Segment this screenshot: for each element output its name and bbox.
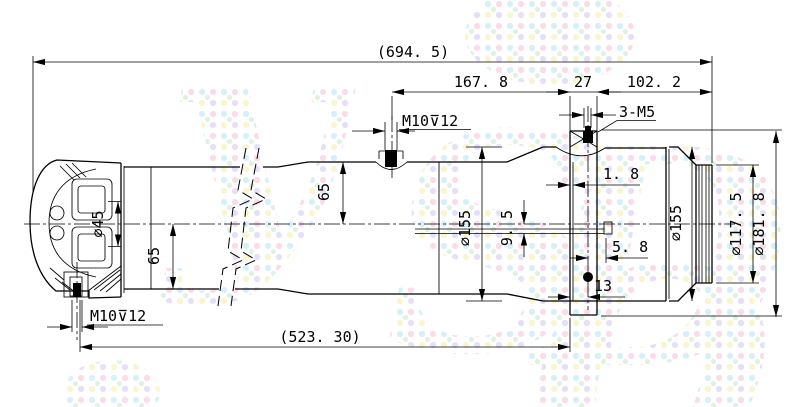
- dim-text-dia-181-8: ∅181. 8: [750, 192, 768, 255]
- dim-text-m10-bottom: M10⊽12: [90, 307, 146, 325]
- dim-text-1-8: 1. 8: [603, 165, 639, 183]
- dim-text-dia-155-mid: ∅155: [456, 210, 474, 246]
- m10-top-hole: [385, 150, 397, 167]
- dim-text-27: 27: [574, 73, 592, 91]
- dim-text-dia-45: ∅45: [89, 210, 107, 237]
- dim-text-65-front: 65: [145, 247, 163, 265]
- dim-text-13: 13: [594, 277, 612, 295]
- dim-text-5-8: 5. 8: [612, 238, 648, 256]
- watermark-blob: [64, 360, 160, 407]
- dim-text-523-30: (523. 30): [279, 328, 360, 346]
- dim-text-65-mid: 65: [315, 183, 333, 201]
- pin-dot: [583, 272, 593, 282]
- dim-text-3m5: 3-M5: [619, 103, 655, 121]
- dim-text-dia-155-rear: ∅155: [667, 205, 685, 241]
- engineering-drawing: y S D Q: [0, 0, 800, 407]
- dim-text-9-5: 9. 5: [498, 210, 516, 246]
- thread-callout-m10-bottom: M10⊽12: [47, 307, 163, 327]
- watermark: y S D Q: [64, 0, 793, 407]
- dim-text-102-2: 102. 2: [627, 73, 681, 91]
- spindle-drawing-svg: y S D Q: [0, 0, 800, 407]
- nose-section: [30, 160, 124, 298]
- dim-text-overall: (694. 5): [377, 43, 449, 61]
- m10-bottom-hole: [73, 283, 81, 297]
- dim-text-m10-top: M10⊽12: [402, 112, 458, 130]
- dim-text-dia-117-5: ∅117. 5: [727, 192, 745, 255]
- m5-hole: [583, 131, 593, 143]
- thread-callout-m10-top: M10⊽12: [352, 112, 471, 131]
- watermark-letter: y: [156, 0, 358, 311]
- dim-text-167-8: 167. 8: [454, 73, 508, 91]
